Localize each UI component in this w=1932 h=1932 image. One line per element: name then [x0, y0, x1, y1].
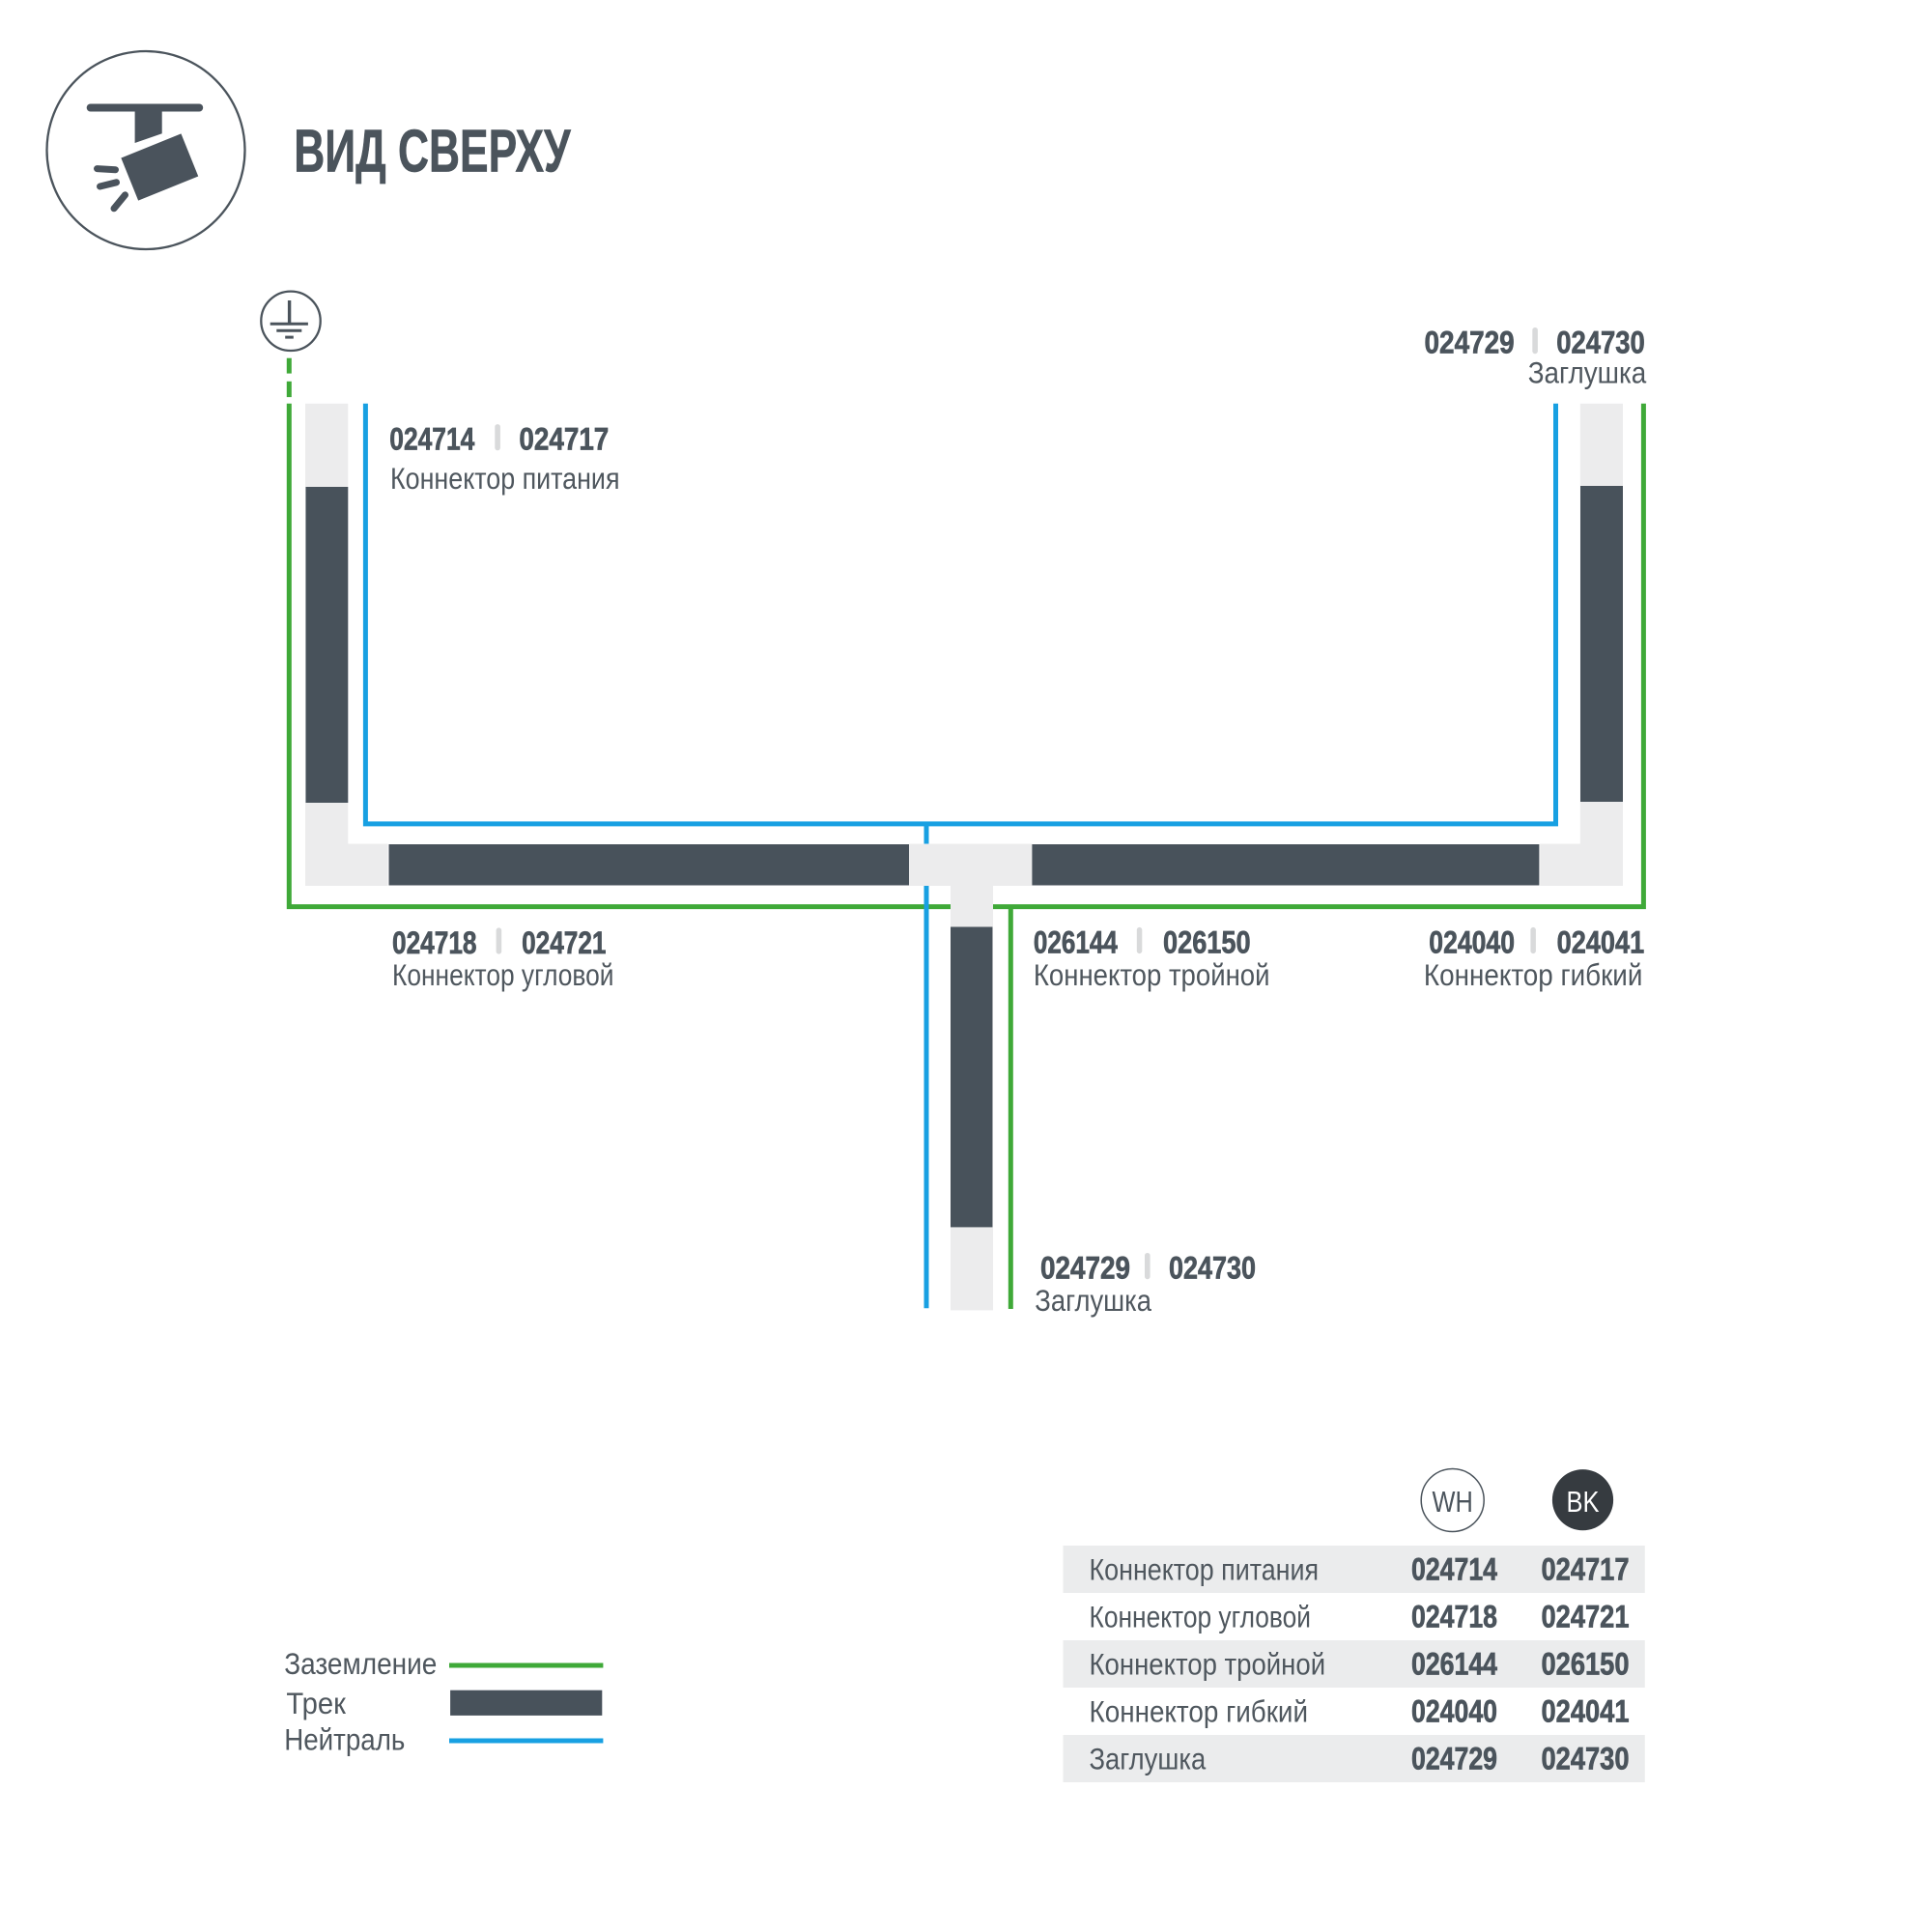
svg-text:Нейтраль: Нейтраль [284, 1722, 405, 1757]
svg-text:024717: 024717 [519, 422, 609, 457]
svg-text:ВИД СВЕРХУ: ВИД СВЕРХУ [294, 119, 571, 185]
svg-text:026150: 026150 [1542, 1647, 1630, 1682]
svg-text:024718: 024718 [1411, 1600, 1497, 1634]
svg-text:024040: 024040 [1429, 924, 1515, 959]
svg-text:024714: 024714 [1411, 1552, 1497, 1587]
svg-text:026150: 026150 [1163, 924, 1251, 959]
svg-text:WH: WH [1433, 1487, 1473, 1519]
svg-text:Коннектор тройной: Коннектор тройной [1034, 957, 1270, 992]
svg-text:Трек: Трек [286, 1686, 346, 1720]
svg-text:024717: 024717 [1542, 1552, 1630, 1587]
svg-text:024718: 024718 [392, 925, 477, 960]
svg-text:Заглушка: Заглушка [1035, 1283, 1151, 1318]
svg-text:026144: 026144 [1034, 924, 1118, 959]
svg-text:Коннектор угловой: Коннектор угловой [392, 957, 614, 992]
svg-text:024721: 024721 [1542, 1600, 1630, 1634]
svg-text:024729: 024729 [1425, 325, 1515, 359]
svg-text:024040: 024040 [1411, 1694, 1497, 1729]
svg-text:Коннектор гибкий: Коннектор гибкий [1090, 1694, 1309, 1729]
svg-text:026144: 026144 [1411, 1647, 1497, 1682]
svg-text:024730: 024730 [1169, 1251, 1256, 1286]
svg-text:BK: BK [1567, 1485, 1600, 1519]
svg-text:Коннектор питания: Коннектор питания [1090, 1552, 1320, 1587]
svg-text:Заземление: Заземление [284, 1646, 437, 1681]
svg-text:Заглушка: Заглушка [1090, 1742, 1207, 1776]
svg-text:024041: 024041 [1557, 924, 1645, 959]
svg-text:Коннектор питания: Коннектор питания [390, 461, 620, 496]
svg-text:024730: 024730 [1542, 1742, 1630, 1776]
svg-text:Коннектор тройной: Коннектор тройной [1090, 1647, 1326, 1682]
svg-text:024721: 024721 [522, 925, 606, 960]
svg-text:024729: 024729 [1411, 1742, 1497, 1776]
svg-text:024041: 024041 [1542, 1694, 1630, 1729]
svg-text:Коннектор угловой: Коннектор угловой [1090, 1600, 1312, 1634]
svg-text:024729: 024729 [1040, 1251, 1130, 1286]
svg-text:Заглушка: Заглушка [1528, 355, 1647, 390]
svg-text:Коннектор гибкий: Коннектор гибкий [1424, 957, 1643, 992]
svg-text:024714: 024714 [389, 422, 474, 457]
